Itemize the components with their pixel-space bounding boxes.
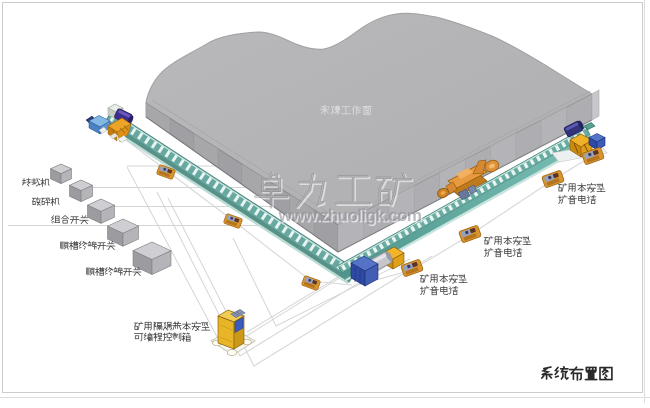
svg-text:www.zhuoligk.com: www.zhuoligk.com	[278, 206, 422, 225]
